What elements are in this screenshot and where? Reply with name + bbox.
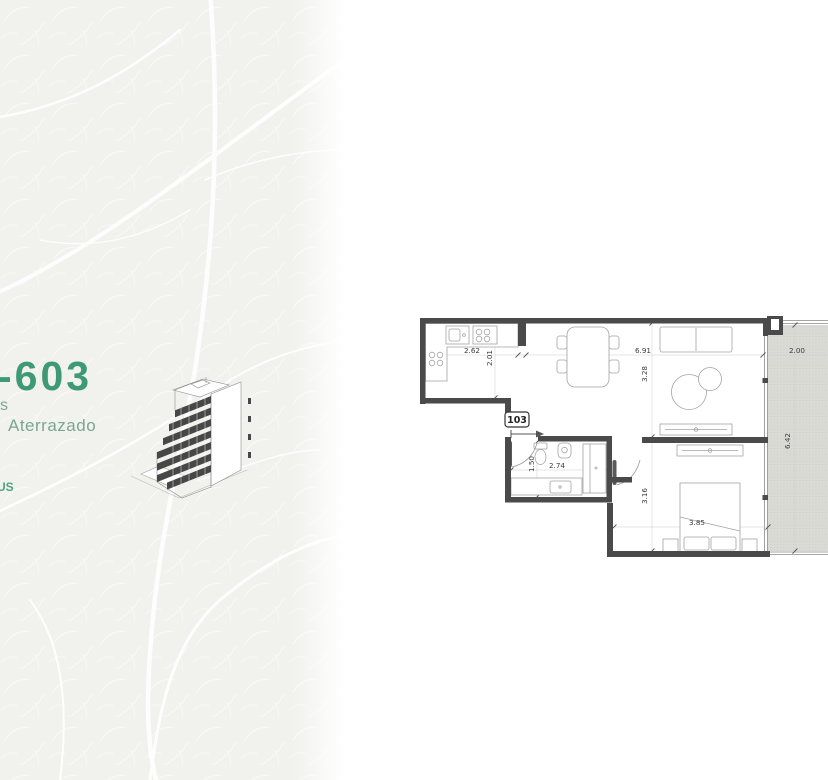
dim-terrace-depth: 6.42 [783,433,792,449]
nightstand [663,539,678,552]
dim-bedroom-width: 3.85 [689,518,705,527]
dim-bedroom-depth: 3.16 [640,488,649,504]
dim-living-width: 6.91 [635,346,651,355]
nightstand [742,539,757,552]
footer-text-fragment: US [0,481,14,493]
dim-bath-depth: 1.50 [527,456,536,472]
dim-terrace-width: 2.00 [789,346,805,355]
page: -603 s Aterrazado US [0,0,828,780]
dining-chair [609,360,619,373]
pillow [684,537,709,550]
dining-chair [609,336,619,349]
unit-label-badge: 103 [505,412,529,427]
tagline-line-2: Aterrazado [8,417,96,434]
dim-living-depth: 3.28 [640,366,649,382]
bidet [558,443,571,458]
floor-plan: 103 2.62 2.01 6.91 3.28 1.50 2.74 3.16 3… [415,310,828,562]
living-furniture [660,327,732,435]
unit-label-text: 103 [507,415,527,426]
pillow [711,537,736,550]
unit-number: -603 [0,356,92,397]
side-table [699,368,722,391]
dining-table [567,327,609,387]
building-axonometric-icon [127,374,253,500]
dining-chair [557,336,567,349]
tagline-line-1: s [0,398,8,414]
dim-kitchen-depth: 2.01 [485,350,494,366]
dim-bath-width: 2.74 [549,461,565,470]
terrace-area [768,325,828,551]
bedroom-furniture [663,445,757,553]
dining-set [557,327,619,387]
shower [583,444,606,493]
dining-chair [557,360,567,373]
dim-kitchen-width: 2.62 [464,346,480,355]
